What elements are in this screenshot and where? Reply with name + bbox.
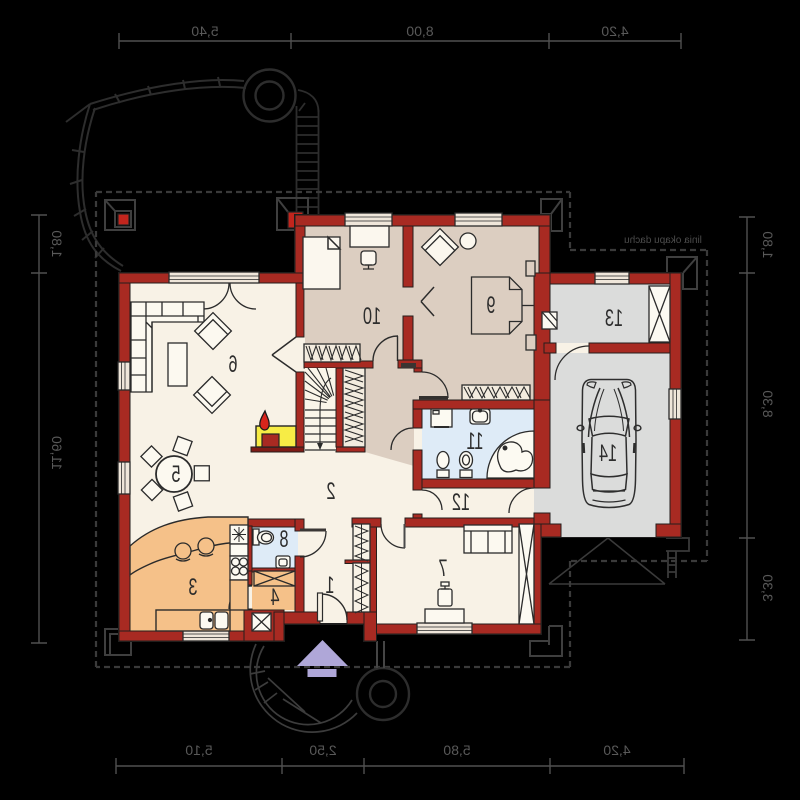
svg-text:8: 8 bbox=[279, 526, 288, 553]
svg-text:11,60: 11,60 bbox=[49, 436, 65, 470]
svg-text:8,00: 8,00 bbox=[406, 23, 433, 39]
svg-text:5,80: 5,80 bbox=[443, 742, 470, 758]
svg-text:2: 2 bbox=[326, 478, 335, 505]
svg-text:6: 6 bbox=[228, 351, 237, 378]
svg-text:10: 10 bbox=[363, 303, 381, 330]
svg-text:3: 3 bbox=[188, 574, 197, 601]
svg-text:5: 5 bbox=[171, 461, 180, 488]
svg-text:8,30: 8,30 bbox=[760, 390, 776, 417]
svg-text:linia okapu dachu: linia okapu dachu bbox=[624, 235, 702, 246]
svg-text:5,40: 5,40 bbox=[191, 23, 218, 39]
svg-text:2,50: 2,50 bbox=[309, 742, 336, 758]
svg-text:11: 11 bbox=[467, 428, 484, 455]
svg-text:13: 13 bbox=[605, 305, 623, 332]
svg-text:12: 12 bbox=[452, 489, 470, 516]
svg-text:5,10: 5,10 bbox=[185, 742, 212, 758]
svg-text:9: 9 bbox=[486, 292, 495, 319]
svg-text:3,30: 3,30 bbox=[760, 574, 776, 601]
svg-text:1,80: 1,80 bbox=[49, 230, 65, 257]
svg-text:4,20: 4,20 bbox=[603, 742, 630, 758]
svg-text:14: 14 bbox=[599, 440, 617, 467]
svg-text:1,80: 1,80 bbox=[760, 231, 776, 258]
svg-text:4: 4 bbox=[270, 584, 279, 611]
svg-text:1: 1 bbox=[325, 572, 334, 599]
svg-text:4,20: 4,20 bbox=[601, 23, 628, 39]
svg-text:7: 7 bbox=[438, 555, 447, 582]
